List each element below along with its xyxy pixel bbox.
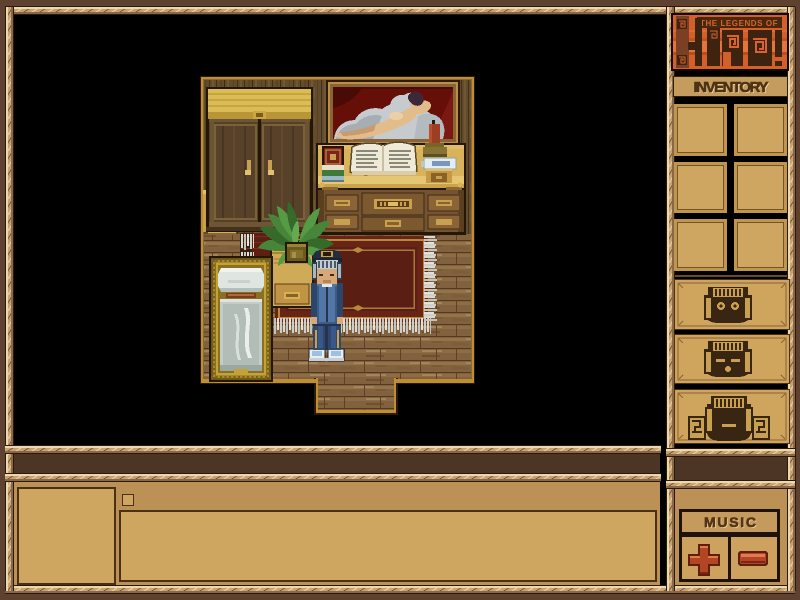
svg-text:MUSIC: MUSIC <box>704 514 756 530</box>
svg-text:INVENTORY: INVENTORY <box>694 79 769 96</box>
svg-text:THE LEGENDS OF: THE LEGENDS OF <box>700 19 778 28</box>
